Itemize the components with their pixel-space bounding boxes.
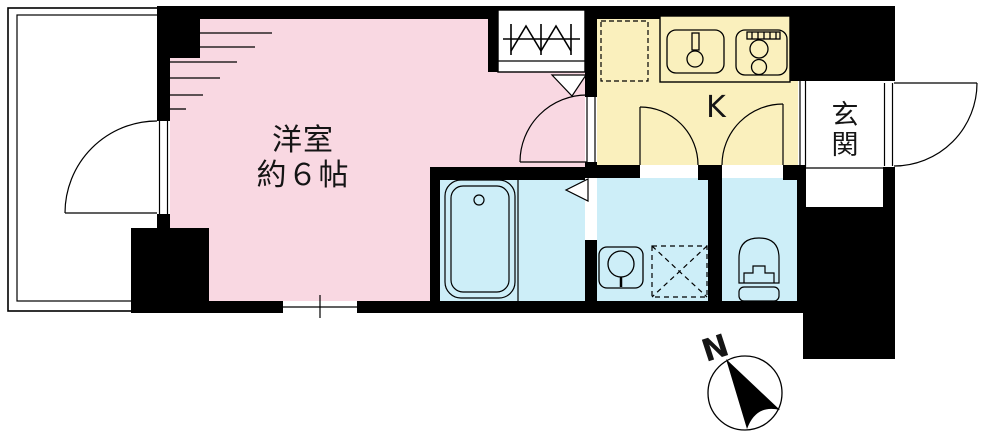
wall-bottom (131, 301, 800, 313)
wall-room-kitchen (585, 6, 597, 97)
wall-bath-left (430, 167, 440, 313)
wall-washroom-toilet-top (698, 165, 722, 180)
wall-entrance-right (883, 167, 895, 207)
washroom-doorway (640, 165, 698, 178)
wall-top-right-block (788, 6, 895, 81)
living-room-label-line2: 約６帖 (257, 158, 350, 193)
wall-bottom-left-block (131, 228, 209, 313)
wall-bath-door-lower (585, 240, 597, 303)
wall-left-upper (157, 19, 170, 121)
balcony-door (157, 121, 170, 214)
room-door-opening (585, 97, 597, 162)
toilet-doorway (722, 165, 783, 178)
wall-bottom-right-block (803, 207, 895, 359)
living-room-label-line1: 洋室 (272, 123, 334, 158)
kitchen-counter (660, 16, 790, 82)
wall-washroom-top (597, 165, 640, 178)
closet (498, 10, 585, 72)
floor-plan-image: N 洋室 約６帖 K 玄 関 (0, 0, 984, 432)
wall-washroom-toilet (708, 178, 722, 303)
floor-plan-canvas: N 洋室 約６帖 K 玄 関 (0, 0, 984, 432)
wall-toilet-top-right (783, 165, 806, 180)
wall-closet-left (488, 6, 498, 72)
kitchen-label: K (706, 90, 727, 125)
entrance-label-char-top: 玄 (832, 100, 859, 131)
wall-bath-top (430, 167, 597, 180)
entrance-label-char-bottom: 関 (832, 130, 859, 161)
entrance-doorway (883, 81, 895, 167)
toilet-floor (722, 165, 806, 313)
